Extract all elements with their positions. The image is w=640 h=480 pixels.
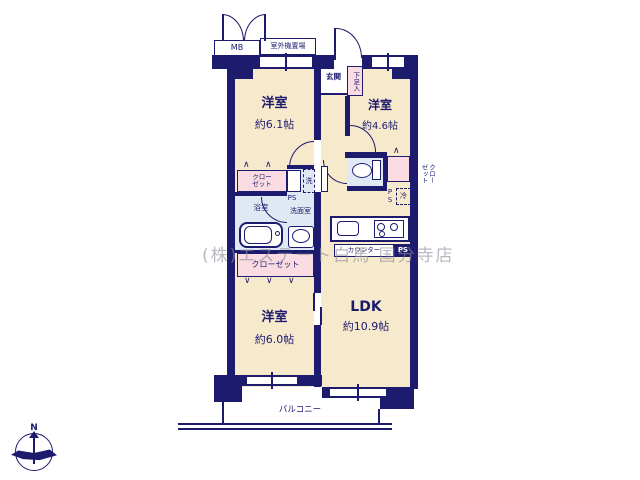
stove-burner	[377, 223, 385, 231]
entrance-door-leaf	[334, 28, 336, 60]
window-tick	[271, 372, 273, 389]
washer-label: 洗	[303, 169, 315, 193]
closet-west61-label: クロー ゼット	[237, 170, 287, 192]
counter-label: カウンター	[334, 244, 394, 257]
west61-door-gap	[314, 140, 321, 168]
closet-west46	[387, 156, 410, 182]
mb-door-leaf	[264, 14, 266, 41]
kitchen-sink	[337, 221, 359, 236]
window-tick	[357, 384, 359, 401]
window-tick	[387, 53, 389, 71]
wall-top-right-a	[362, 55, 372, 69]
room-west60-name: 洋室	[235, 310, 314, 326]
room-ldk-name: LDK	[322, 298, 410, 316]
fold-door-mark: ∧	[393, 147, 400, 156]
wall-bottom-ldk-a	[322, 387, 330, 398]
washbasin-bowl	[292, 229, 310, 243]
stove-burner	[379, 231, 385, 237]
entrance-door-arc	[336, 28, 362, 58]
washroom-door-gap	[314, 168, 321, 192]
mb-label: MB	[214, 41, 260, 55]
bathtub-inner	[244, 226, 272, 244]
wall-center-upper	[314, 55, 321, 140]
wall-center-lower	[314, 325, 321, 387]
fold-door-mark: ∨	[244, 277, 251, 286]
stove-burner	[390, 223, 398, 231]
washroom-label: 洗面室	[286, 206, 315, 217]
mb-door-leaf	[222, 14, 224, 41]
balcony-rail-bottom	[178, 428, 392, 430]
room-west46-name: 洋室	[350, 98, 410, 113]
washroom-door-leaf	[321, 166, 328, 192]
balcony-support-right	[378, 409, 380, 423]
ps-label-right: PS	[385, 186, 395, 206]
room-west61-size: 約6.1帖	[235, 118, 314, 132]
room-ldk-size: 約10.9帖	[322, 320, 410, 335]
wall-bath-top	[235, 192, 287, 196]
wall-center-mid	[314, 192, 321, 293]
balcony-rail-top	[178, 423, 392, 425]
ps-label-washroom: PS	[283, 193, 301, 203]
floorplan-page: { "watermark": "(株)エステート白馬 国分寺店", "compa…	[0, 0, 640, 480]
window-tick	[285, 53, 287, 71]
room-west46-size: 約4.6帖	[347, 120, 413, 133]
bathtub-drain	[275, 231, 280, 236]
ps-box-kitchen-label: PS	[394, 244, 412, 257]
ps-shaft-box	[287, 170, 301, 192]
outdoor-unit-label: 室外機置場	[260, 39, 316, 54]
fridge-label: 冷	[396, 188, 411, 205]
bathroom-label: 浴室	[235, 203, 287, 214]
wall-west46-bottom	[345, 152, 387, 158]
fold-door-mark: ∨	[266, 277, 273, 286]
balcony-label: バルコニー	[260, 404, 340, 417]
closet-west60-label: クローゼット	[237, 253, 314, 277]
compass-north-label: N	[27, 423, 41, 434]
wall-top-right-b	[404, 55, 418, 69]
entrance-label: 玄関	[320, 72, 347, 83]
wall-right	[410, 69, 418, 389]
sliding-door-panel	[313, 293, 315, 311]
mb-door-arc-left	[222, 14, 244, 41]
closet-west46-label: クロー ゼット	[417, 153, 437, 195]
entrance-step-line	[321, 93, 347, 95]
shoe-cabinet-label: 下足入	[348, 68, 362, 95]
balcony-support-left	[222, 402, 224, 423]
wall-top-left-block	[212, 55, 260, 69]
wall-bottom-west60-a	[235, 375, 247, 386]
room-west61-name: 洋室	[235, 96, 314, 112]
toilet-bowl	[352, 163, 372, 178]
room-west60-size: 約6.0帖	[235, 333, 314, 347]
toilet-tank	[372, 160, 381, 180]
wall-left	[227, 69, 235, 375]
compass-needle	[33, 434, 35, 464]
fold-door-mark: ∨	[288, 277, 295, 286]
fold-door-mark: ∧	[243, 161, 250, 170]
wall-toilet-bottom	[347, 186, 383, 191]
fold-door-mark: ∧	[265, 161, 272, 170]
mb-door-arc-right	[244, 14, 266, 41]
